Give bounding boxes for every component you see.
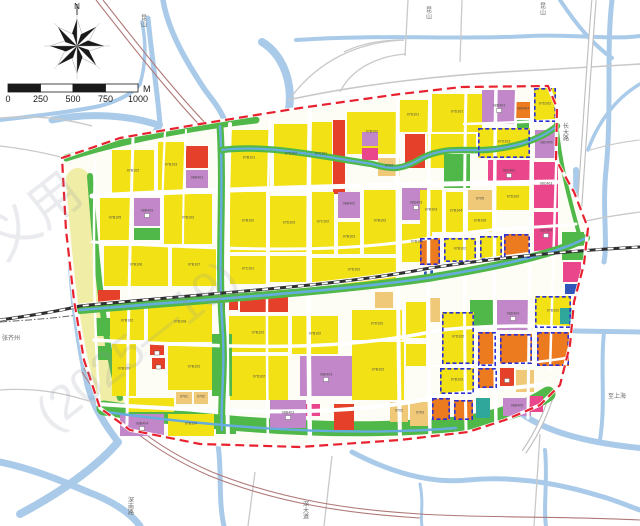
parcel-label: 07D101 — [407, 113, 420, 117]
parcel-label: 07B102 — [127, 169, 139, 173]
parcel-label: 07D102 — [539, 102, 552, 106]
parcel-label: 07B102 — [366, 130, 378, 134]
edge-label: 深大道 — [303, 500, 309, 521]
parcel — [96, 318, 110, 336]
edge-label: 长大路 — [563, 122, 569, 143]
parcel-label: 08B403 — [141, 209, 153, 213]
parcel-label: 07B102 — [309, 332, 321, 336]
parcel-label: 07B103 — [425, 208, 437, 212]
parcel — [375, 292, 393, 308]
parcel — [454, 400, 473, 420]
facility-icon — [286, 416, 291, 420]
parcel-label: 07B105 — [474, 219, 486, 223]
parcel-label: 07D102 — [253, 375, 266, 379]
parcel-label: 0702 — [197, 395, 205, 399]
parcel-label: 07B103 — [451, 378, 463, 382]
parcel — [406, 344, 426, 366]
parcel-label: 07B103 — [165, 163, 177, 167]
parcel-label: 07B102 — [547, 309, 559, 313]
facility-icon — [140, 427, 145, 431]
parcel-label: 07C102 — [317, 220, 330, 224]
scale-bar: 02505007501000 M — [5, 84, 150, 104]
parcel-label: 08D403 — [410, 201, 423, 205]
edge-label: 张齐州 — [2, 334, 20, 342]
parcel — [186, 146, 208, 168]
parcel-label: 0703 — [416, 411, 424, 415]
parcel-label: 07B106 — [130, 263, 142, 267]
north-label: N — [74, 2, 80, 11]
parcel-label: 08B402 — [343, 202, 355, 206]
parcel-label: 07B102 — [372, 368, 384, 372]
parcel-label: 07D102 — [371, 322, 384, 326]
edge-label: 昆山 — [141, 15, 147, 28]
parcel-label: 08D404 — [517, 107, 530, 111]
facility-icon — [507, 174, 512, 178]
parcel — [134, 228, 160, 240]
facility-icon — [511, 317, 516, 321]
parcel — [432, 398, 450, 420]
scale-tick: 500 — [65, 94, 80, 104]
parcel-label: 07B103 — [343, 235, 355, 239]
facility-icon — [544, 234, 549, 238]
edge-label: 昆山 — [426, 7, 432, 20]
parcel — [362, 148, 378, 160]
edge-label: 至上海 — [608, 392, 626, 400]
planning-map-figure: 07B10207B10308B40107B10508B40307B10207B1… — [0, 0, 640, 526]
parcel-label: 07B104 — [185, 422, 197, 426]
facility-icon — [414, 206, 419, 210]
planning-map: 07B10207B10308B40107B10508B40307B10207B1… — [0, 0, 640, 526]
parcel-label: 0702 — [395, 409, 403, 413]
scale-tick: 1000 — [128, 94, 148, 104]
parcel-label: 08B404 — [136, 422, 148, 426]
parcel-label: 08D403 — [320, 373, 333, 377]
facility-icon — [505, 379, 510, 383]
parcel-label: 0701 — [180, 395, 188, 399]
facility-icon — [497, 109, 502, 113]
parcel-label: 07B102 — [374, 219, 386, 223]
parcel-label: 07B102 — [242, 219, 254, 223]
parcel — [270, 256, 308, 282]
parcel-label: 07B105 — [109, 216, 121, 220]
parcel-label: 07B102 — [454, 247, 466, 251]
scale-tick: 250 — [33, 94, 48, 104]
parcel-label: 07D102 — [348, 268, 361, 272]
facility-icon — [145, 214, 150, 218]
parcel-label: 08D405 — [540, 141, 553, 145]
parcel-label: 07D102 — [285, 152, 298, 156]
parcel-label: 0704 — [385, 164, 393, 168]
compass-rose — [44, 4, 110, 79]
parcel-label: 08C402 — [503, 169, 516, 173]
parcel-label: 07D103 — [283, 221, 296, 225]
parcel-label: 08C403 — [540, 182, 553, 186]
parcel — [500, 368, 514, 386]
parcel-label: 07B104 — [450, 209, 462, 213]
parcel-label: 0705 — [476, 197, 484, 201]
parcel-label: 07B102 — [252, 331, 264, 335]
parcel-label: 07B102 — [411, 240, 423, 244]
parcel-label: 07C101 — [242, 267, 255, 271]
facility-icon — [324, 378, 329, 382]
parcel — [362, 132, 378, 146]
scale-unit: M — [143, 84, 151, 94]
parcel — [476, 398, 490, 418]
parcel-label: 07B101 — [243, 156, 255, 160]
parcel-label: 07B102 — [182, 216, 194, 220]
parcel-label: 08B405 — [511, 404, 523, 408]
scale-tick: 0 — [5, 94, 10, 104]
parcel-label: 08B403 — [282, 411, 294, 415]
parcel-label: 07D102 — [452, 335, 465, 339]
scale-tick: 750 — [98, 94, 113, 104]
parcel-label: 07D101 — [451, 110, 464, 114]
parcel-label: 07D103 — [498, 140, 511, 144]
facility-icon — [156, 365, 161, 369]
parcel-label: 07D102 — [507, 195, 520, 199]
parcel-label: 08C404 — [540, 229, 553, 233]
parcel-label: 08D403 — [493, 104, 506, 108]
parcel-label: 08D403 — [507, 312, 520, 316]
parcel-label: 08B401 — [191, 176, 203, 180]
parcel-label: 07C101 — [315, 152, 328, 156]
parcel-label: 07B102 — [188, 365, 200, 369]
edge-label: 深南路 — [128, 496, 134, 517]
edge-label: 昆山 — [540, 3, 546, 16]
